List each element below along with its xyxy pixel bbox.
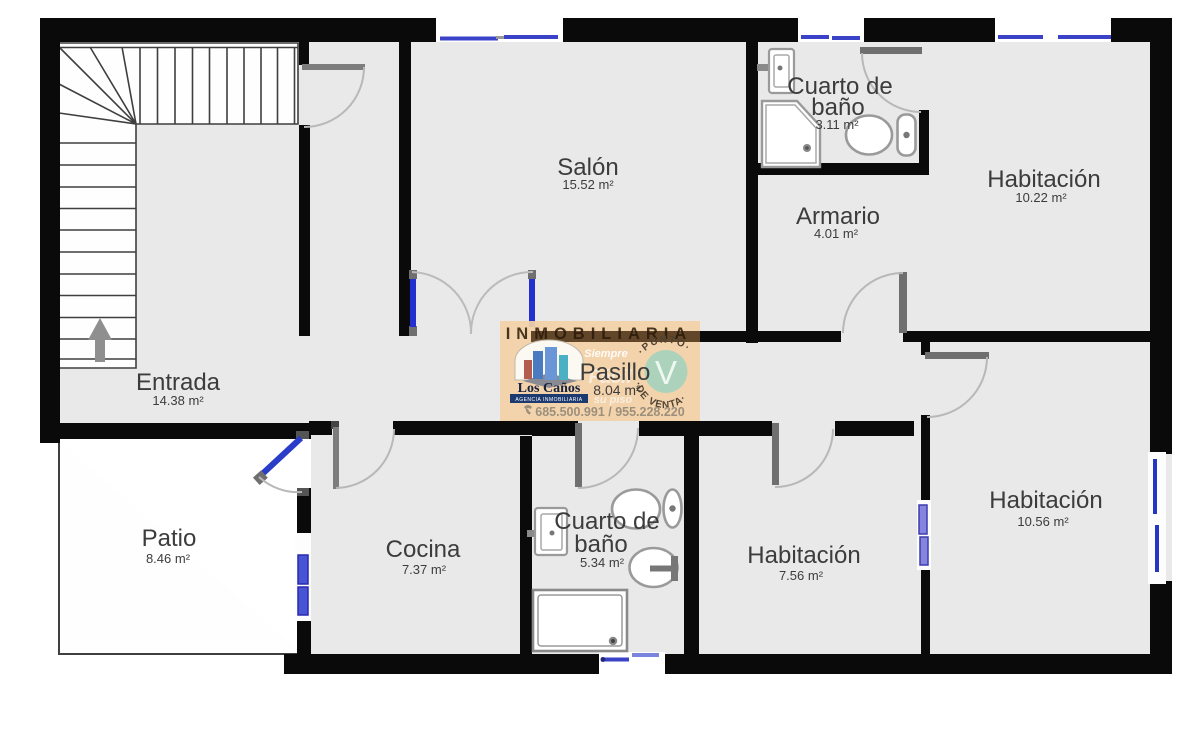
svg-text:Patio: Patio: [142, 525, 197, 552]
svg-text:4.01 m²: 4.01 m²: [814, 226, 859, 241]
svg-text:15.52 m²: 15.52 m²: [562, 177, 614, 192]
svg-text:3.11 m²: 3.11 m²: [815, 117, 859, 132]
svg-text:baño: baño: [574, 531, 627, 558]
svg-text:Habitación: Habitación: [747, 542, 860, 569]
svg-text:7.56 m²: 7.56 m²: [779, 568, 824, 583]
svg-text:8.04 m²: 8.04 m²: [593, 382, 641, 398]
svg-text:Habitación: Habitación: [987, 166, 1100, 193]
svg-text:Habitación: Habitación: [989, 487, 1102, 514]
svg-text:10.22 m²: 10.22 m²: [1015, 190, 1067, 205]
svg-text:AGENCIA INMOBILIARIA: AGENCIA INMOBILIARIA: [515, 397, 582, 403]
svg-text:Los Caños: Los Caños: [518, 381, 581, 396]
svg-text:Cocina: Cocina: [386, 536, 461, 563]
svg-text:14.38 m²: 14.38 m²: [152, 393, 204, 408]
svg-text:V: V: [655, 354, 677, 391]
svg-text:685.500.991 / 955.228.220: 685.500.991 / 955.228.220: [535, 405, 684, 419]
svg-text:Entrada: Entrada: [136, 369, 221, 396]
svg-text:10.56 m²: 10.56 m²: [1017, 514, 1069, 529]
svg-text:7.37 m²: 7.37 m²: [402, 562, 447, 577]
svg-text:5.34 m²: 5.34 m²: [580, 555, 625, 570]
svg-text:8.46 m²: 8.46 m²: [146, 551, 191, 566]
